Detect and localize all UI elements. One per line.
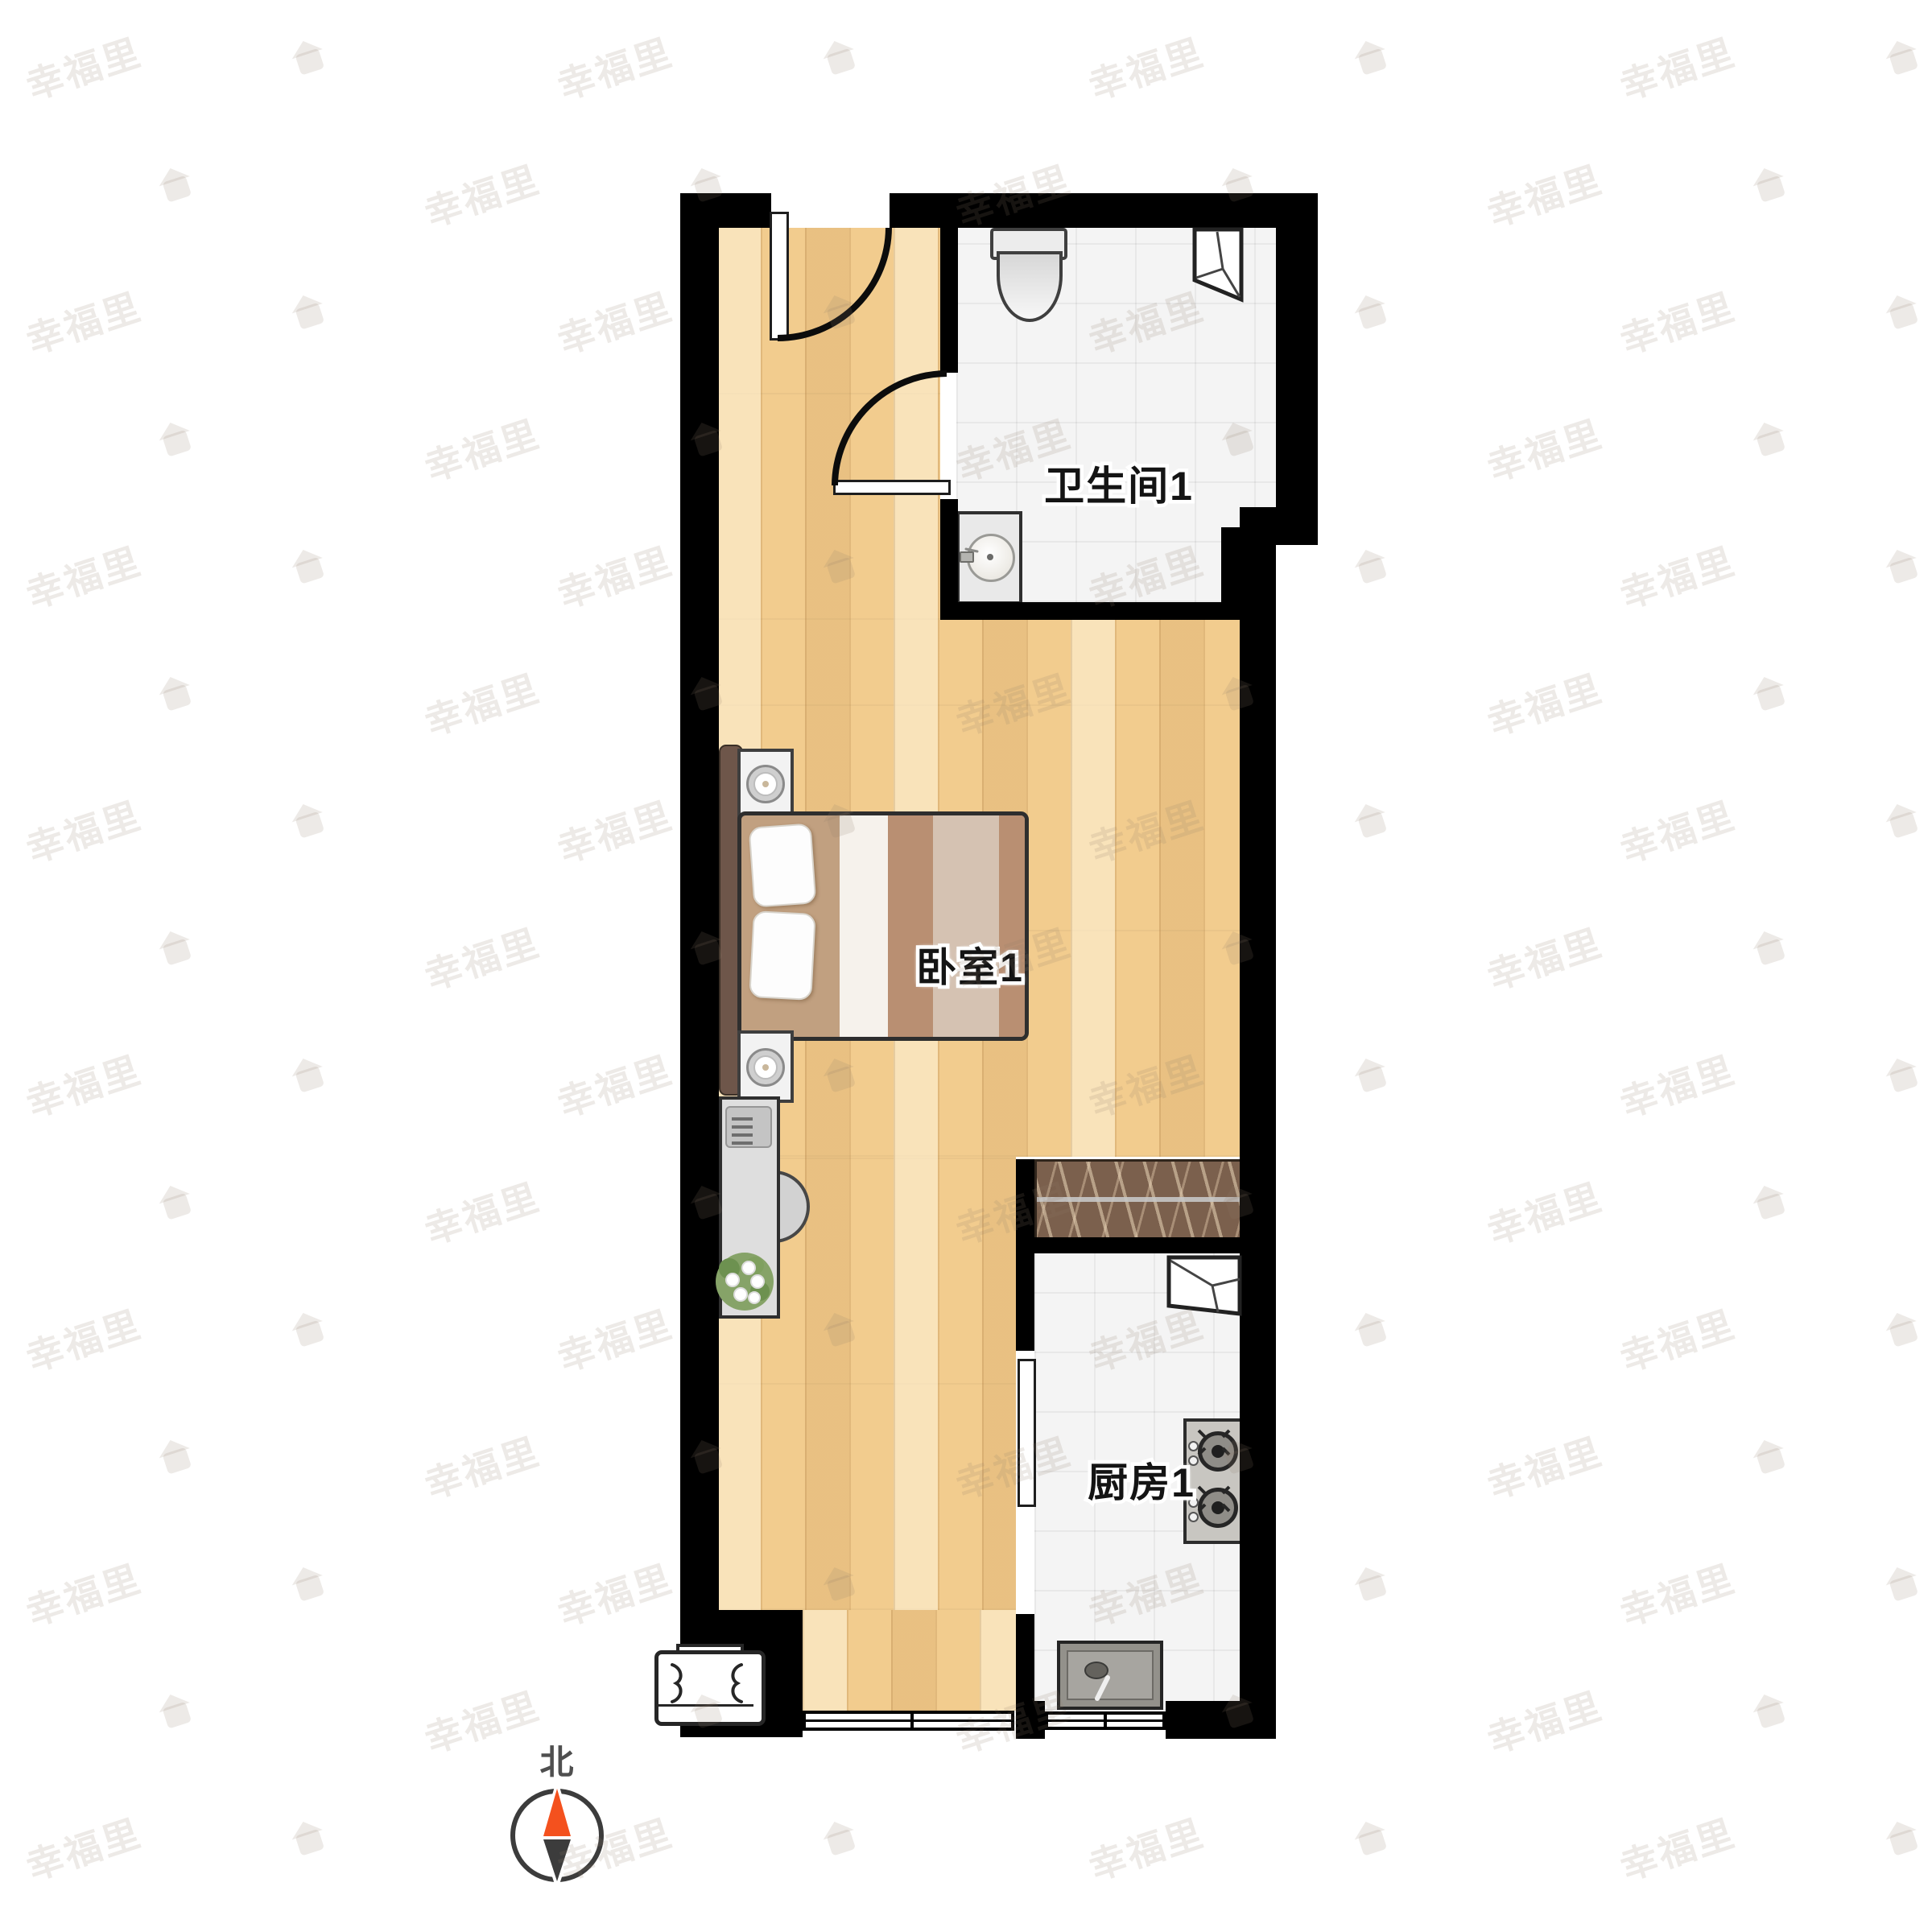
bathroom-door-arc: [835, 374, 947, 485]
entry-door-arc: [778, 228, 889, 338]
bathroom-label: 卫生间1: [1044, 454, 1194, 512]
north-label: 北: [539, 1736, 574, 1785]
bedroom-label: 卧室1: [916, 935, 1024, 993]
bathroom-corner-unit-icon: [1195, 229, 1241, 299]
basin-highlight: [966, 549, 977, 551]
bench-armrests: [672, 1665, 741, 1702]
faucet-icon: [1097, 1678, 1108, 1699]
plant-icon: [716, 1253, 774, 1311]
burner-ticks: [1199, 1430, 1229, 1511]
kitchen-corner-unit-icon: [1169, 1257, 1240, 1314]
floorplan-canvas: 卧室1 卫生间1 厨房1 北 幸福里幸福里幸福里幸福里幸福里幸福里幸福里幸福里幸…: [0, 0, 1932, 1932]
compass: [513, 1787, 601, 1884]
kitchen-label: 厨房1: [1088, 1451, 1195, 1509]
